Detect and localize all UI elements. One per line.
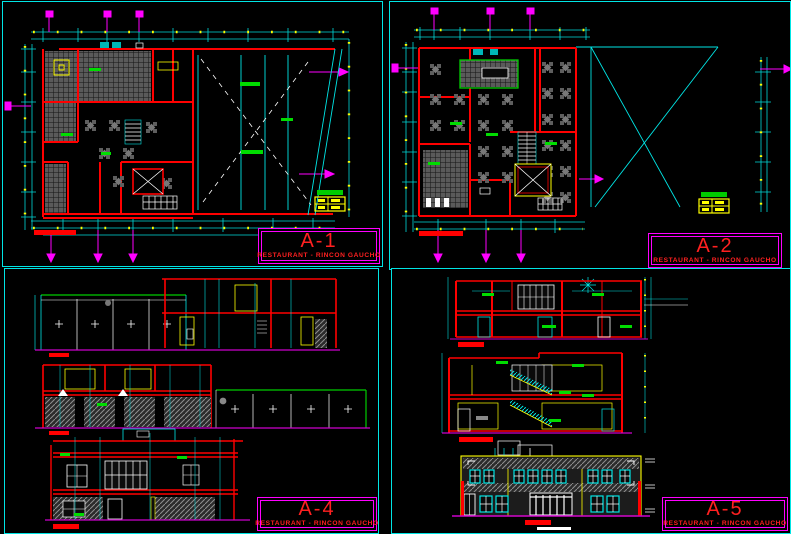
sheet-subtitle: RESTAURANT - RINCON GAUCHO	[653, 258, 777, 265]
title-block-a1: A-1 RESTAURANT - RINCON GAUCHO	[258, 228, 380, 264]
scale-bar	[419, 231, 463, 236]
storage-grid	[143, 196, 177, 209]
sheet-subtitle: RESTAURANT - RINCON GAUCHO	[663, 521, 787, 528]
patio	[576, 47, 718, 207]
plan-a1-drawing	[3, 2, 382, 266]
facade-row3	[461, 448, 655, 516]
cad-canvas: A-1 RESTAURANT - RINCON GAUCHO	[0, 0, 791, 534]
sheet-subtitle: RESTAURANT - RINCON GAUCHO	[257, 253, 381, 260]
title-block-a5: A-5 RESTAURANT - RINCON GAUCHO	[662, 497, 788, 531]
label-row2	[459, 437, 493, 442]
label-row1	[49, 353, 69, 357]
stairs	[518, 132, 536, 166]
label-row1	[458, 342, 484, 347]
sheet-id: A-1	[300, 231, 337, 251]
sheet-id: A-5	[706, 499, 743, 519]
sections-a4-drawing	[5, 269, 378, 533]
section-row1	[448, 277, 688, 339]
sections-a5-drawing	[392, 269, 790, 533]
patio-cross	[201, 59, 311, 205]
viewport-plan-a1[interactable]: A-1 RESTAURANT - RINCON GAUCHO	[2, 1, 383, 267]
label-row3	[525, 520, 551, 525]
scale-bar-white	[537, 527, 571, 530]
elevation-row1-left	[35, 295, 186, 350]
scale-bar	[34, 230, 76, 235]
shaft	[133, 169, 163, 194]
sheet-id: A-4	[298, 499, 335, 519]
elevation-row3	[51, 429, 243, 520]
elevation-row2-right	[216, 390, 366, 428]
label-row3	[53, 524, 79, 529]
detail-boxes	[498, 441, 552, 457]
shaft	[515, 164, 551, 196]
title-block-a2: A-2 RESTAURANT - RINCON GAUCHO	[648, 233, 782, 268]
viewport-sections-a4[interactable]: A-4 RESTAURANT - RINCON GAUCHO	[4, 268, 379, 534]
stairs	[125, 120, 141, 144]
plan-a2-drawing	[390, 2, 790, 269]
label-row2	[49, 431, 69, 435]
viewport-sections-a5[interactable]: A-5 RESTAURANT - RINCON GAUCHO	[391, 268, 791, 534]
sheet-subtitle: RESTAURANT - RINCON GAUCHO	[255, 521, 379, 528]
title-block-a4: A-4 RESTAURANT - RINCON GAUCHO	[257, 497, 377, 531]
fan-icon	[580, 277, 596, 293]
legend-stamp	[315, 190, 345, 211]
stair-section-row2	[442, 353, 645, 433]
section-row1-right	[162, 279, 336, 348]
sheet-id: A-2	[696, 236, 733, 256]
bar-counter	[460, 49, 518, 88]
section-row2-left	[43, 365, 211, 428]
legend-stamp	[699, 192, 729, 213]
viewport-plan-a2[interactable]: A-2 RESTAURANT - RINCON GAUCHO	[389, 1, 791, 270]
